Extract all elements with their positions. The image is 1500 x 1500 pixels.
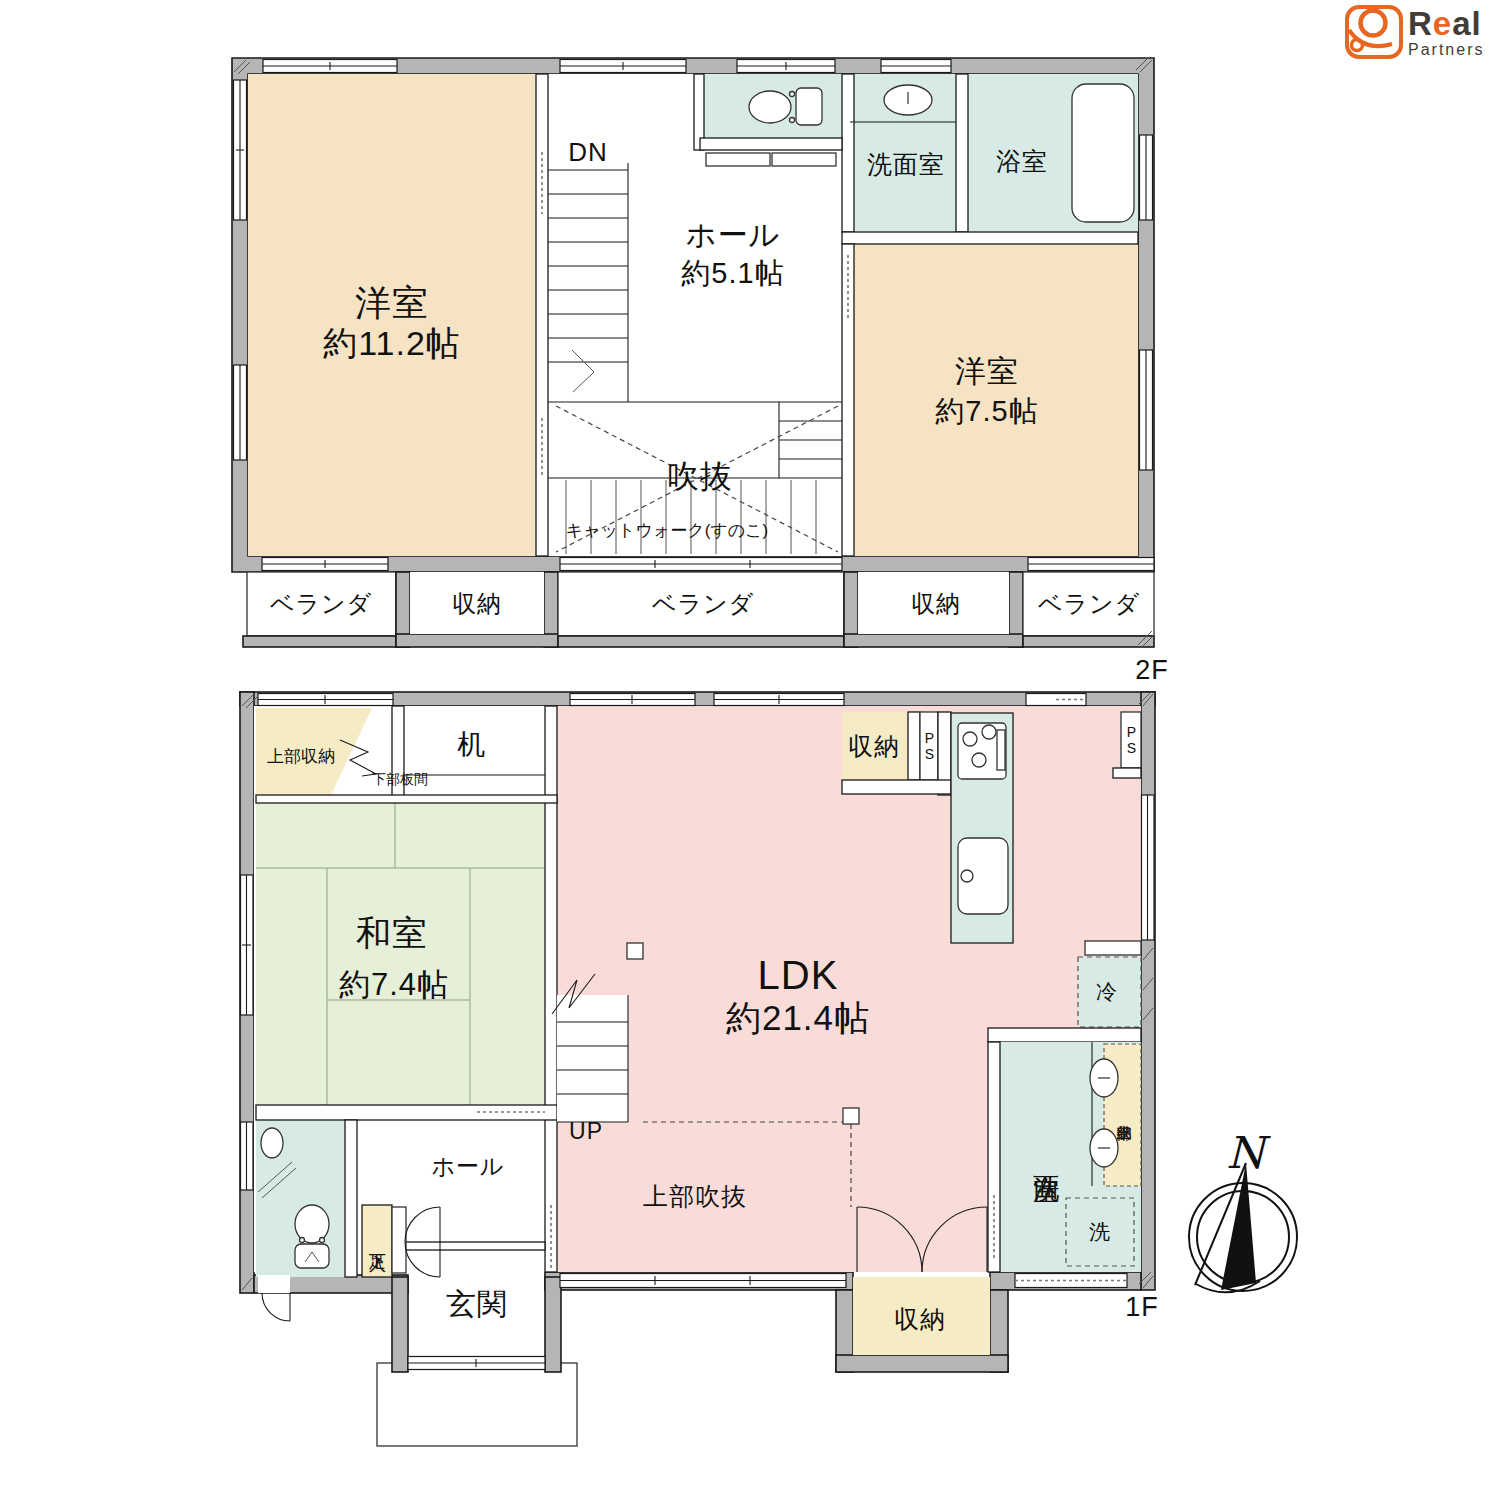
label-2f-bathroom: 浴室 [996, 148, 1048, 174]
compass-icon [1189, 1163, 1297, 1292]
label-2f-western-large-name: 洋室 [355, 284, 429, 322]
label-1f-floor: 1F [1125, 1293, 1159, 1321]
real-partners-logo-text: Real Partners [1408, 7, 1484, 58]
label-1f-stairs-up: UP [569, 1119, 603, 1143]
kitchen-sink-icon [958, 838, 1008, 914]
label-1f-genkan: 玄関 [446, 1288, 508, 1320]
logo-brand: Real [1408, 7, 1484, 40]
label-2f-hall-name: ホール [686, 219, 780, 251]
label-1f-lower-board: 下部板間 [372, 772, 428, 787]
label-1f-fridge: 冷 [1096, 981, 1118, 1003]
logo-subbrand: Partners [1408, 42, 1484, 58]
floor-plan-page: Real Partners 洋室 約11.2帖 ホール 約5.1帖 DN 洗面室… [0, 0, 1500, 1500]
2f-bathtub-icon [1072, 84, 1134, 222]
label-2f-washroom: 洗面室 [867, 151, 945, 177]
label-2f-veranda-right: ベランダ [1038, 591, 1140, 616]
fridge-shelf [1085, 941, 1141, 955]
label-1f-ps-right: PS [1124, 724, 1139, 756]
label-2f-storage-right: 収納 [911, 591, 961, 616]
label-2f-western-small-name: 洋室 [955, 356, 1019, 389]
real-partners-logo-icon [1347, 7, 1401, 57]
label-1f-washitsu-size: 約7.4帖 [339, 969, 449, 1002]
label-2f-stairs-dn: DN [568, 139, 608, 166]
label-2f-veranda-center: ベランダ [652, 591, 754, 616]
void-post [627, 943, 643, 959]
2f-closet-shelf [772, 153, 836, 166]
label-2f-hall-size: 約5.1帖 [681, 258, 784, 288]
2f-closet-shelf [706, 153, 770, 166]
label-1f-ps-kitchen: PS [922, 730, 937, 762]
floor-1f-plan [240, 692, 1155, 1446]
label-1f-desk: 机 [458, 730, 487, 759]
1f-washroom [988, 1028, 1141, 1272]
label-2f-void: 吹抜 [667, 460, 733, 494]
1f-shoe-box [362, 1205, 392, 1277]
label-1f-ldk-size: 約21.4帖 [726, 1000, 870, 1037]
label-2f-western-small-size: 約7.5帖 [935, 396, 1038, 426]
label-compass-north: N [1226, 1130, 1266, 1176]
label-2f-western-large-size: 約11.2帖 [323, 326, 461, 362]
void-post [843, 1108, 859, 1124]
1f-porch [377, 1363, 577, 1446]
1f-stairs-up [552, 974, 628, 1122]
label-2f-storage-left: 収納 [452, 591, 502, 616]
1f-washitsu-room [256, 800, 545, 1105]
label-1f-washitsu-name: 和室 [356, 915, 428, 952]
stove-icon [958, 723, 1006, 779]
label-2f-veranda-left: ベランダ [270, 591, 372, 616]
label-2f-floor: 2F [1135, 656, 1169, 684]
label-1f-kitchen-storage: 収納 [848, 733, 900, 759]
label-2f-catwalk: キャットウォーク(すのこ) [566, 522, 768, 540]
toilet-back-door [258, 1275, 290, 1321]
label-1f-storage-bottom: 収納 [894, 1306, 946, 1332]
label-1f-upper-void: 上部吹抜 [643, 1183, 747, 1209]
label-1f-hall: ホール [431, 1154, 504, 1178]
label-1f-upper-storage: 上部収納 [267, 748, 335, 766]
genkan-door-leaf [392, 1207, 406, 1273]
label-1f-ldk-name: LDK [758, 954, 839, 996]
label-1f-washer: 洗 [1089, 1221, 1111, 1243]
